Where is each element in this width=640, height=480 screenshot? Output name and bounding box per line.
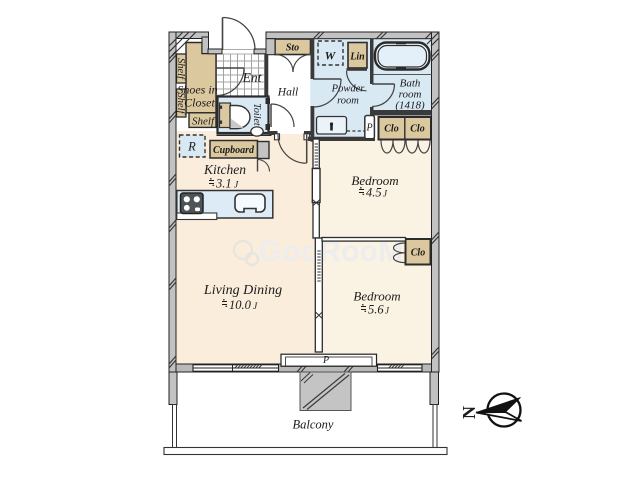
svg-text:P: P (322, 355, 329, 366)
svg-text:4.5: 4.5 (366, 186, 382, 200)
svg-text:Ent: Ent (242, 70, 263, 85)
svg-text:Hall: Hall (277, 87, 298, 99)
svg-text:Kitchen: Kitchen (203, 162, 246, 177)
svg-text:Cupboard: Cupboard (213, 145, 255, 156)
svg-text:Shelf: Shelf (192, 116, 216, 128)
svg-text:Clo: Clo (410, 124, 424, 135)
svg-text:10.0: 10.0 (229, 298, 252, 312)
svg-text:N: N (459, 406, 479, 419)
svg-text:Clo: Clo (384, 124, 398, 135)
svg-text:5.6: 5.6 (368, 303, 384, 317)
svg-text:Powder: Powder (331, 84, 366, 95)
svg-text:Clo: Clo (411, 248, 425, 259)
svg-text:Shelf: Shelf (175, 93, 186, 116)
svg-text:Closet: Closet (184, 96, 215, 110)
svg-text:Lin: Lin (349, 52, 365, 63)
svg-text:3.1: 3.1 (215, 177, 232, 191)
svg-text:P: P (366, 123, 373, 134)
svg-text:W: W (325, 49, 337, 63)
svg-text:(1418): (1418) (395, 100, 425, 112)
svg-text:Living Dining: Living Dining (203, 283, 282, 298)
svg-text:Shelf: Shelf (175, 58, 186, 81)
svg-text:Sto: Sto (286, 43, 299, 54)
svg-text:Bedroom: Bedroom (353, 289, 400, 304)
svg-text:R: R (187, 140, 196, 154)
svg-text:Toilet: Toilet (251, 103, 262, 126)
svg-text:Balcony: Balcony (293, 418, 334, 432)
svg-text:room: room (337, 96, 359, 107)
